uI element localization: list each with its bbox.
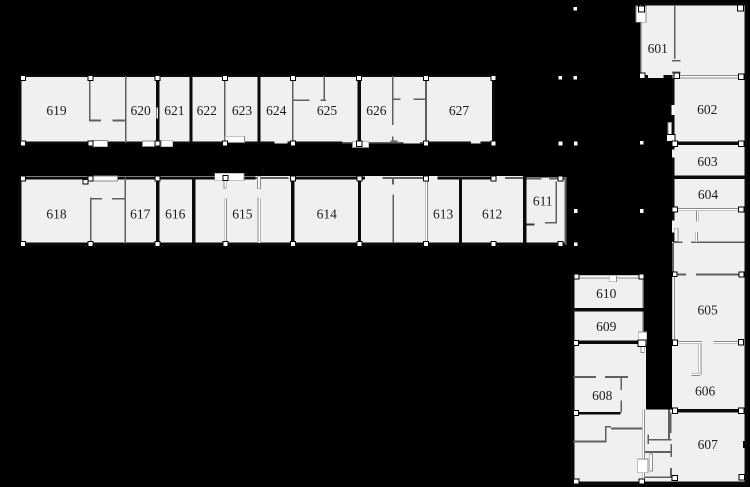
svg-text:624: 624 bbox=[266, 103, 287, 118]
svg-text:621: 621 bbox=[164, 103, 184, 118]
svg-text:613: 613 bbox=[433, 206, 454, 221]
svg-text:622: 622 bbox=[197, 103, 217, 118]
svg-text:614: 614 bbox=[317, 207, 338, 222]
svg-text:606: 606 bbox=[695, 384, 716, 399]
svg-text:605: 605 bbox=[697, 303, 718, 318]
svg-text:623: 623 bbox=[232, 103, 253, 118]
svg-text:610: 610 bbox=[596, 286, 617, 301]
svg-text:616: 616 bbox=[165, 207, 186, 222]
svg-text:619: 619 bbox=[46, 103, 67, 118]
svg-text:618: 618 bbox=[46, 207, 67, 222]
svg-text:625: 625 bbox=[317, 103, 338, 118]
svg-text:601: 601 bbox=[648, 41, 668, 56]
svg-text:615: 615 bbox=[232, 207, 253, 222]
svg-text:620: 620 bbox=[130, 103, 151, 118]
svg-text:617: 617 bbox=[130, 207, 151, 222]
svg-text:612: 612 bbox=[482, 206, 502, 221]
svg-text:609: 609 bbox=[596, 319, 617, 334]
svg-text:611: 611 bbox=[533, 193, 553, 208]
svg-text:607: 607 bbox=[698, 437, 719, 452]
svg-text:627: 627 bbox=[449, 103, 470, 118]
svg-text:603: 603 bbox=[697, 154, 718, 169]
svg-text:604: 604 bbox=[698, 187, 719, 202]
svg-text:626: 626 bbox=[366, 103, 387, 118]
svg-text:602: 602 bbox=[697, 102, 717, 117]
svg-text:608: 608 bbox=[592, 388, 613, 403]
